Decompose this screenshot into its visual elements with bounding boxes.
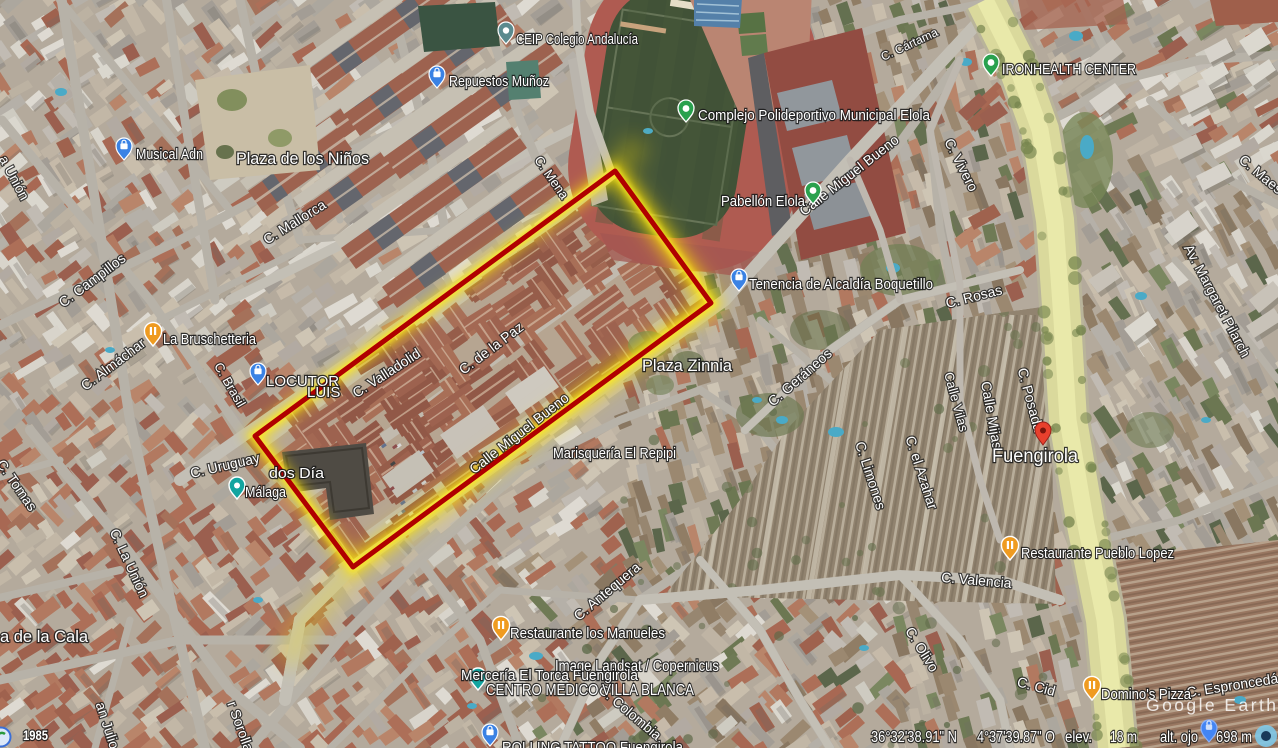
svg-text:Repuestos Muñoz: Repuestos Muñoz xyxy=(449,74,549,90)
svg-text:Complejo Polideportivo Municip: Complejo Polideportivo Municipal Elola xyxy=(698,108,931,124)
svg-text:698 m: 698 m xyxy=(1216,729,1252,746)
svg-text:1985: 1985 xyxy=(23,728,48,743)
svg-text:36°32'38.91" N: 36°32'38.91" N xyxy=(871,729,957,746)
svg-text:La Bruschetteria: La Bruschetteria xyxy=(163,332,257,348)
svg-text:alt. ojo: alt. ojo xyxy=(1160,729,1198,746)
svg-text:a de la Cala: a de la Cala xyxy=(0,628,89,646)
svg-text:ROLLING TATTOO Fuengirola: ROLLING TATTOO Fuengirola xyxy=(502,740,684,748)
svg-text:Musical Adn: Musical Adn xyxy=(136,147,203,163)
svg-text:LUIS: LUIS xyxy=(307,384,340,401)
svg-text:18 m: 18 m xyxy=(1110,729,1137,746)
svg-text:Tenencia de Alcaldía Boquetill: Tenencia de Alcaldía Boquetillo xyxy=(749,277,933,293)
svg-text:Fuengirola: Fuengirola xyxy=(992,445,1078,467)
svg-text:Plaza de los Niños: Plaza de los Niños xyxy=(236,150,369,168)
svg-text:CENTRO MEDICO VILLA BLANCA: CENTRO MEDICO VILLA BLANCA xyxy=(486,682,694,699)
svg-text:Restaurante Pueblo Lopez: Restaurante Pueblo Lopez xyxy=(1021,546,1174,562)
svg-text:Google Earth: Google Earth xyxy=(1146,695,1276,715)
svg-text:dos Día: dos Día xyxy=(269,466,325,482)
svg-text:Restaurante los Manueles: Restaurante los Manueles xyxy=(510,626,665,642)
svg-text:Málaga: Málaga xyxy=(245,485,287,501)
svg-text:Marisquería El Repipi: Marisquería El Repipi xyxy=(553,446,676,462)
svg-text:IRONHEALTH CENTER: IRONHEALTH CENTER xyxy=(1002,62,1136,78)
svg-text:4°37'39.87" O: 4°37'39.87" O xyxy=(977,729,1055,746)
svg-text:Plaza Zinnia: Plaza Zinnia xyxy=(642,357,733,375)
svg-text:elev.: elev. xyxy=(1065,729,1092,746)
svg-text:CEIP Colegio Andalucía: CEIP Colegio Andalucía xyxy=(516,32,639,48)
svg-text:Pabellón Elola: Pabellón Elola xyxy=(721,194,806,210)
